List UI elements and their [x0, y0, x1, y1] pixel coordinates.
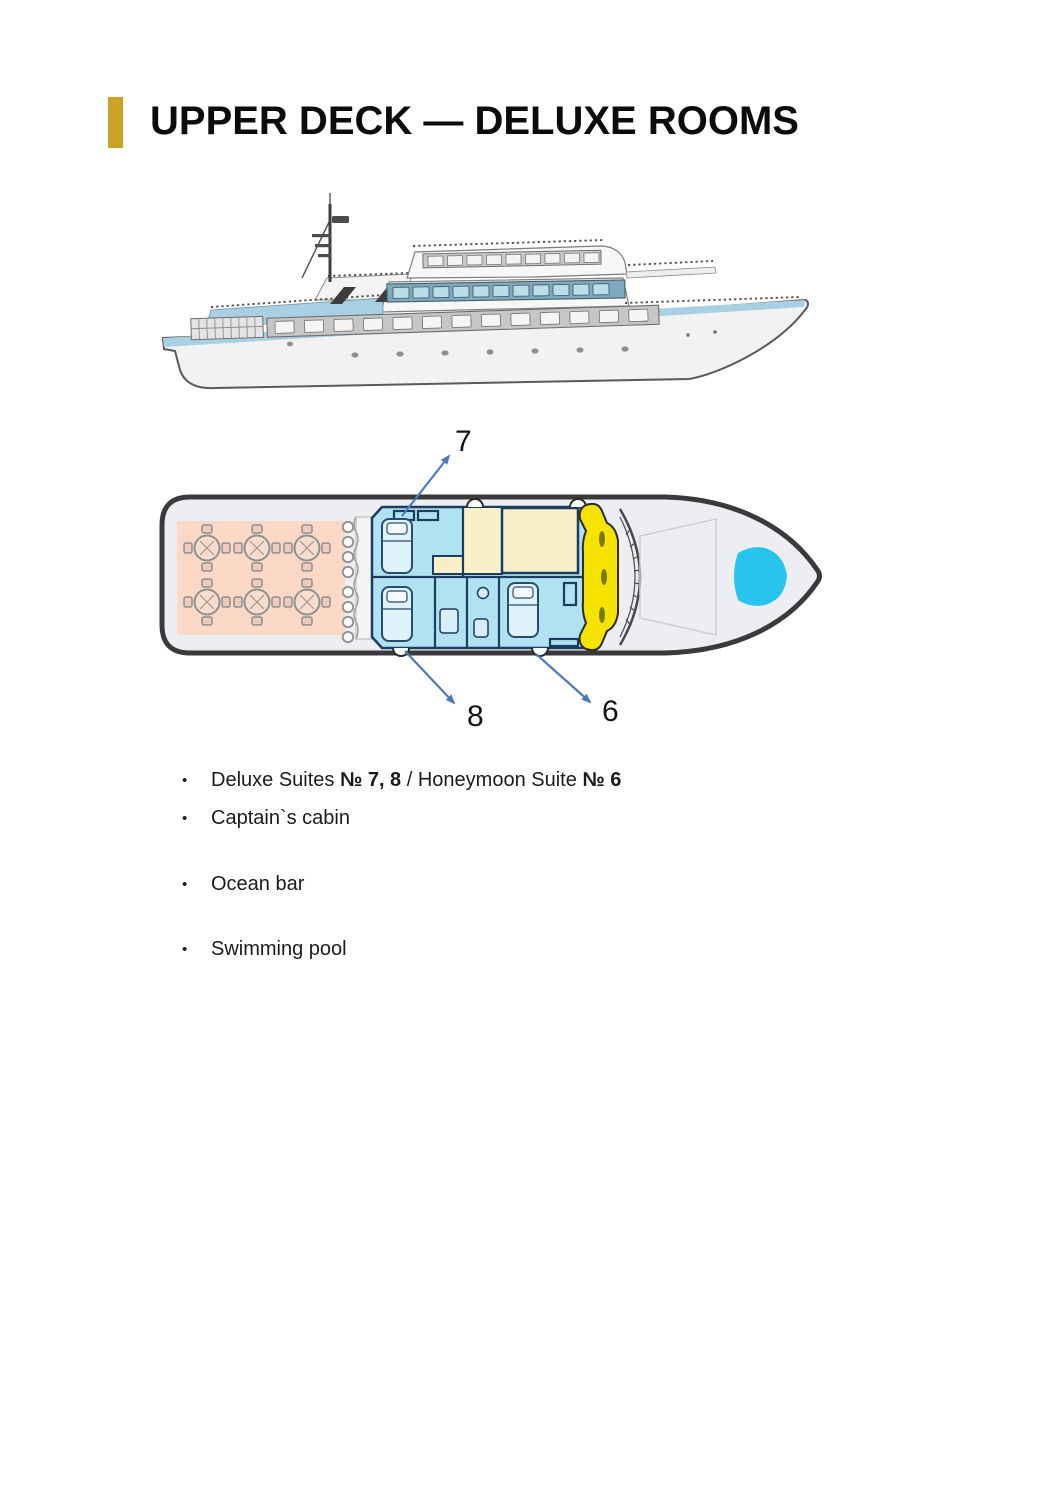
captains-cabin: [502, 508, 578, 573]
list-item-text: Swimming pool: [211, 937, 347, 962]
stairs-area: [580, 504, 618, 650]
bullet-icon: •: [182, 872, 211, 897]
suite-7-bed: [382, 519, 412, 573]
stairs-mark: [601, 569, 607, 585]
ocean-bar-counter: [354, 517, 372, 639]
suite-8-bed: [382, 587, 412, 641]
feature-list: • Deluxe Suites № 7, 8 / Honeymoon Suite…: [182, 768, 802, 975]
list-item: • Captain`s cabin: [182, 806, 802, 831]
bridge-wing-deck: [626, 267, 716, 278]
list-item: • Ocean bar: [182, 872, 802, 897]
list-item-text: Captain`s cabin: [211, 806, 350, 831]
bullet-icon: •: [182, 937, 211, 962]
bullet-icon: •: [182, 768, 211, 793]
bullet-icon: •: [182, 806, 211, 831]
door: [532, 648, 548, 656]
suite-8-label: 8: [467, 700, 484, 733]
bridge-wing-railing: [628, 261, 713, 265]
door: [467, 499, 483, 507]
upper-roof-railing: [413, 240, 605, 246]
stairs-mark: [599, 607, 605, 623]
title-accent-bar: [108, 97, 123, 148]
list-item-text: Deluxe Suites № 7, 8 / Honeymoon Suite №…: [211, 768, 621, 793]
arrow-to-label-6: [536, 654, 590, 702]
toilet: [474, 619, 488, 637]
main-cabin-windows: [387, 280, 625, 302]
yacht-side-profile-illustration: [155, 188, 815, 398]
stairs-mark: [599, 531, 605, 547]
list-item: • Swimming pool: [182, 937, 802, 962]
sink: [478, 588, 489, 599]
suite-7-label: 7: [455, 425, 472, 458]
shower: [440, 609, 458, 633]
arrow-to-label-8: [405, 651, 454, 703]
deck-plan-illustration: 7 8 6: [150, 415, 850, 735]
suite-6-bed: [508, 583, 538, 637]
list-item-text: Ocean bar: [211, 872, 304, 897]
suite-6-label: 6: [602, 695, 619, 728]
list-item: • Deluxe Suites № 7, 8 / Honeymoon Suite…: [182, 768, 802, 793]
page-title: UPPER DECK — DELUXE ROOMS: [150, 99, 799, 144]
document-page: UPPER DECK — DELUXE ROOMS: [0, 0, 1060, 1500]
mast-and-radar: [302, 193, 349, 282]
stern-railing-grid: [191, 316, 264, 339]
